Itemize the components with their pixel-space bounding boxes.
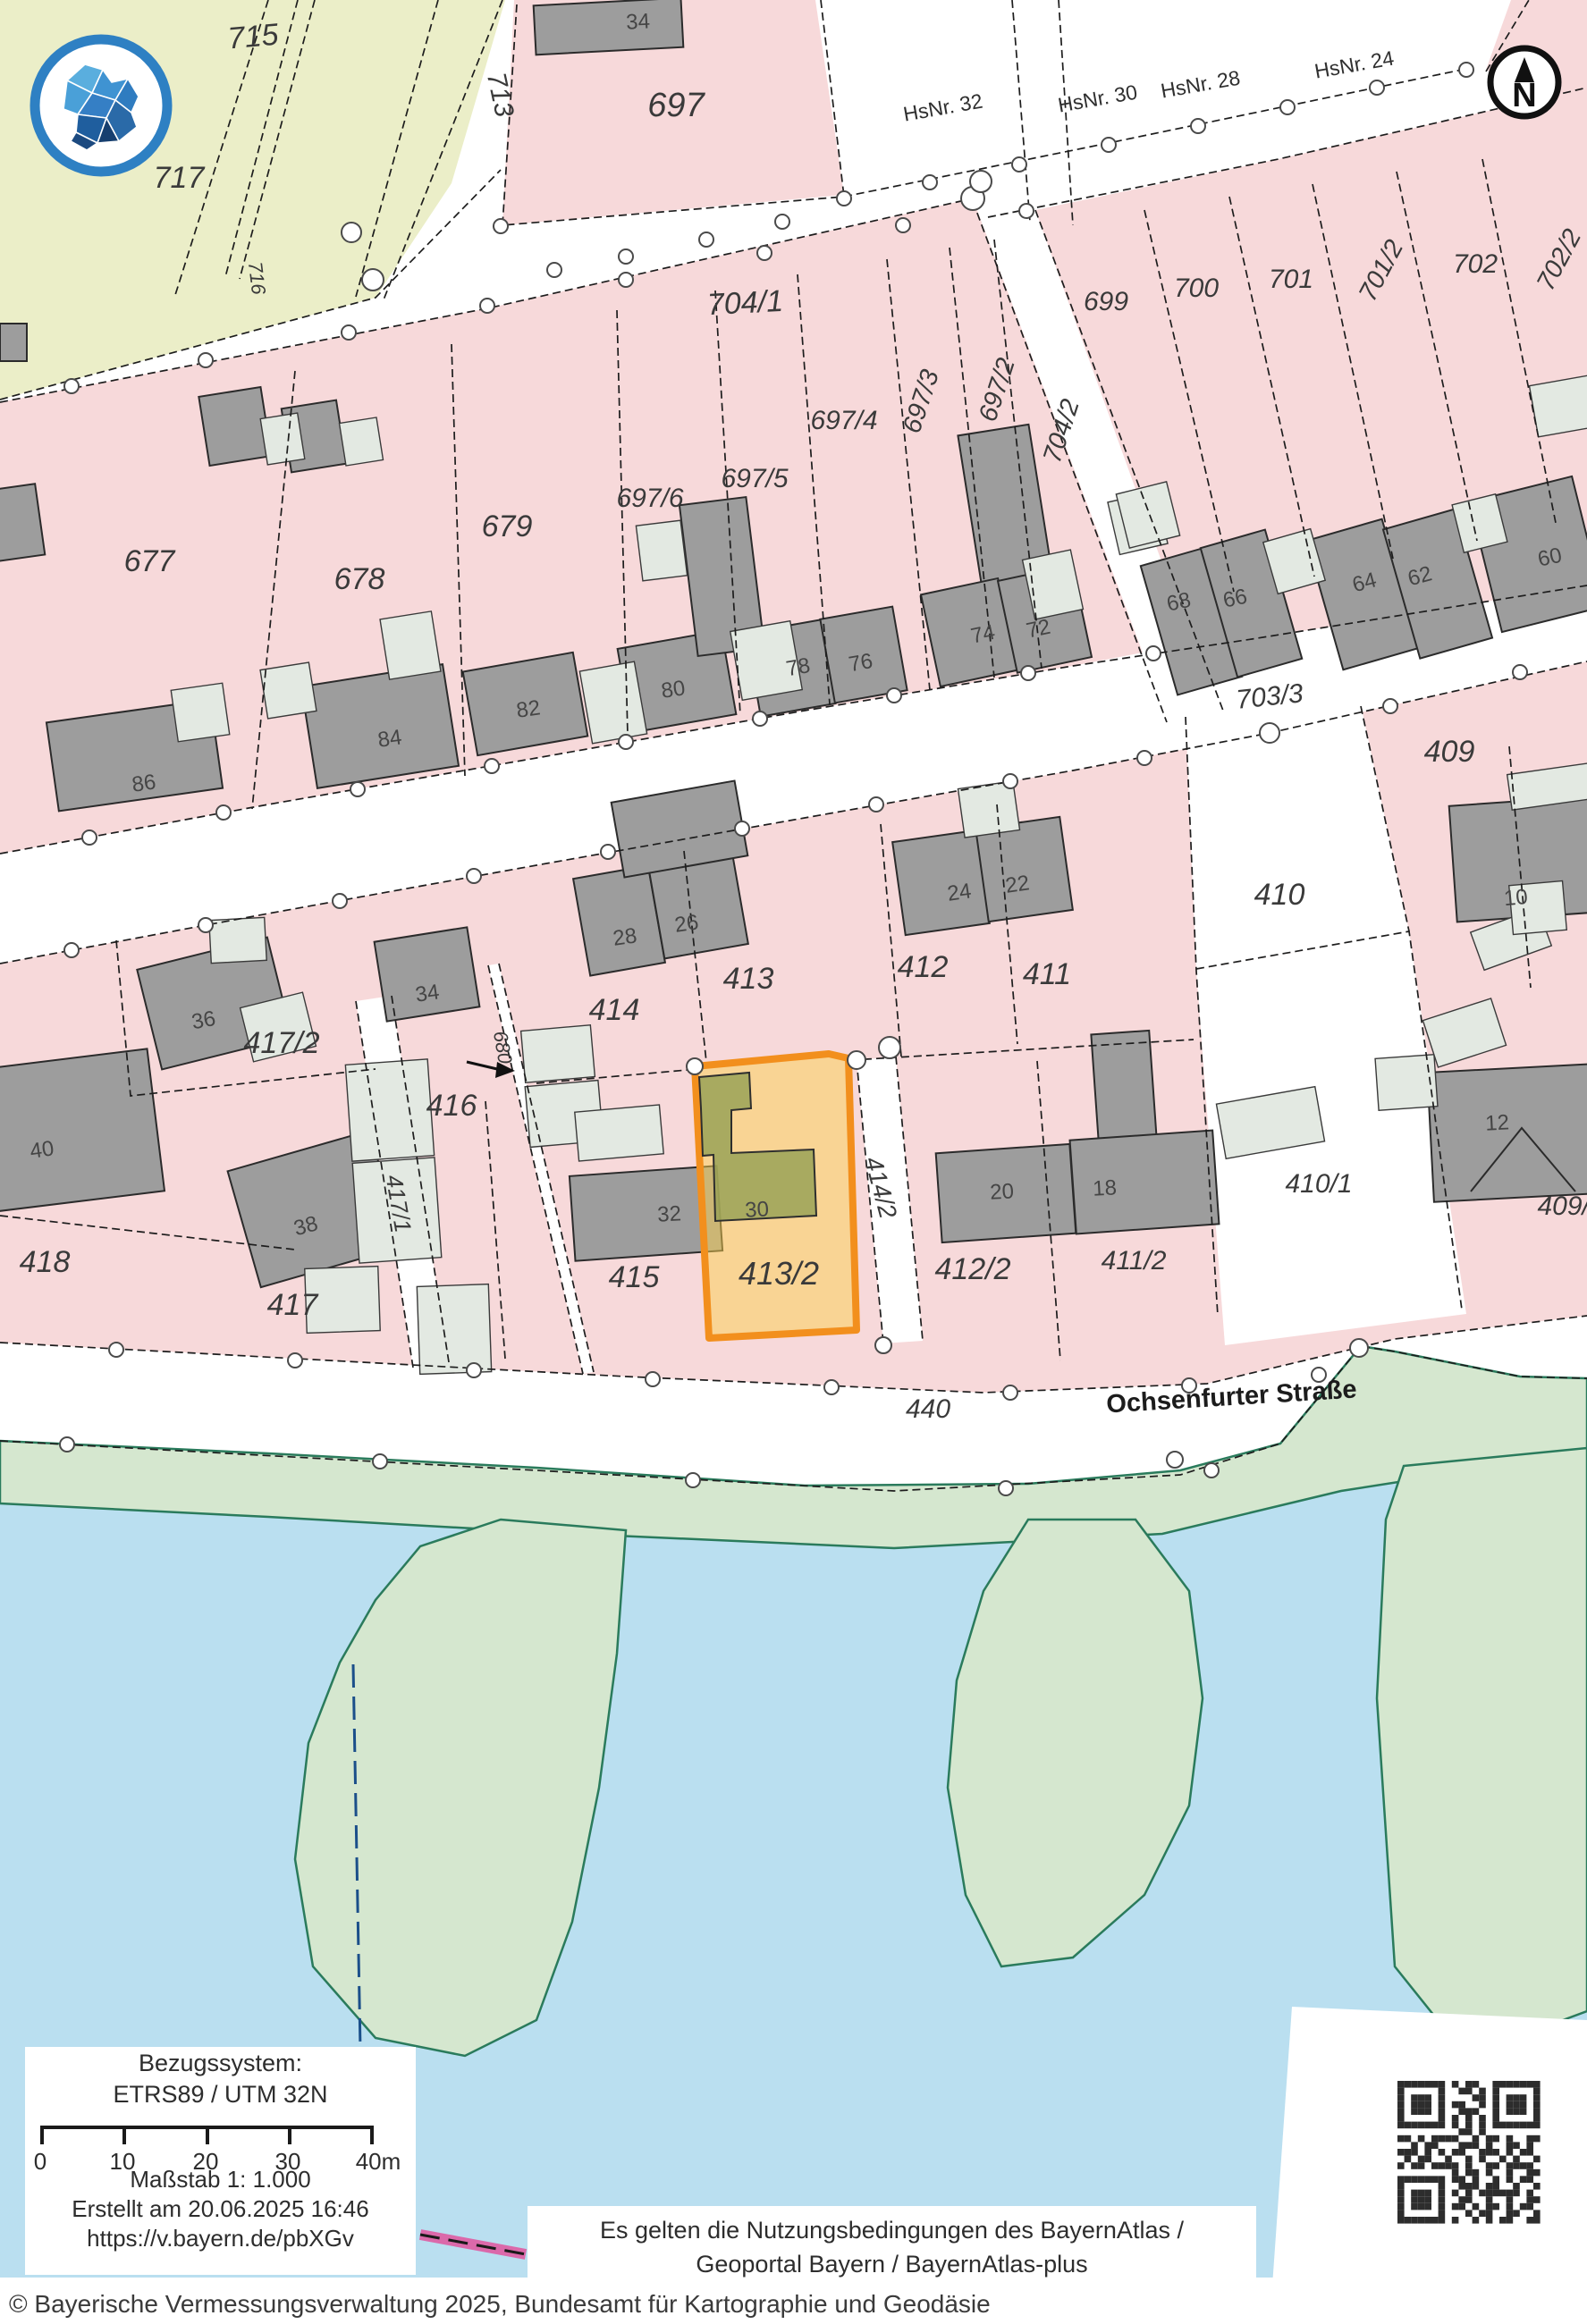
house-number-label: HsNr. 28 — [1159, 66, 1242, 103]
house-number-label: HsNr. 32 — [901, 89, 984, 126]
boundary-line — [1012, 0, 1030, 222]
survey-point — [848, 1051, 865, 1069]
survey-point — [342, 223, 361, 242]
building-number-label: 34 — [626, 9, 651, 34]
survey-point — [480, 299, 494, 313]
building-number-label: 26 — [673, 910, 700, 937]
building-number-label: 82 — [515, 695, 542, 722]
parcel-label: 702 — [1453, 249, 1498, 279]
terms-line-1: Es gelten die Nutzungsbedingungen des Ba… — [528, 2213, 1256, 2247]
north-arrow-icon: N — [1490, 48, 1558, 116]
survey-point — [1102, 138, 1116, 152]
parcel-label: 716 — [244, 260, 270, 296]
building-number-label: 68 — [1165, 588, 1194, 617]
survey-point — [485, 759, 499, 773]
survey-point — [1146, 646, 1161, 661]
highlight-parcel-413-2 — [695, 1054, 857, 1338]
survey-point — [1370, 80, 1384, 95]
scale-bar — [40, 2126, 374, 2147]
outbuilding — [575, 1105, 663, 1161]
reference-box: Bezugssystem: ETRS89 / UTM 32N 0 10 20 3… — [25, 2047, 416, 2275]
survey-point — [1012, 157, 1026, 172]
survey-point — [333, 894, 347, 908]
reference-system-value: ETRS89 / UTM 32N — [25, 2080, 416, 2109]
survey-point — [288, 1353, 302, 1368]
outbuilding — [521, 1025, 595, 1083]
building-number-label: 84 — [376, 725, 403, 752]
building-number-label: 30 — [745, 1197, 770, 1222]
survey-point — [837, 191, 851, 206]
parcel-label: 679 — [482, 509, 533, 543]
parcel-label: 414 — [589, 993, 640, 1027]
survey-point — [757, 246, 772, 260]
building — [198, 387, 271, 466]
building-number-label: 12 — [1485, 1110, 1510, 1135]
outbuilding — [260, 413, 305, 465]
building-number-label: 18 — [1093, 1175, 1118, 1200]
survey-point — [619, 273, 633, 287]
survey-point — [869, 797, 883, 812]
parcel-label: 697 — [647, 87, 705, 124]
survey-point — [1260, 723, 1279, 743]
house-number-label: HsNr. 30 — [1056, 80, 1139, 117]
survey-point — [699, 232, 713, 247]
parcel-label: 410 — [1254, 878, 1305, 912]
cadastral-map-canvas: N 715717716713697704/1699700701701/27027… — [0, 0, 1587, 2324]
short-url: https://v.bayern.de/pbXGv — [25, 2224, 416, 2253]
reference-system-label: Bezugssystem: — [25, 2049, 416, 2078]
survey-point — [350, 782, 365, 796]
survey-point — [1280, 100, 1295, 114]
parcel-label: 697/5 — [721, 464, 788, 493]
building-number-label: 74 — [969, 620, 998, 649]
terms-line-2: Geoportal Bayern / BayernAtlas-plus — [528, 2247, 1256, 2281]
building — [0, 1048, 165, 1212]
parcel-label: 411 — [1023, 957, 1071, 991]
survey-point — [1383, 699, 1397, 713]
building — [534, 0, 684, 55]
survey-point — [1019, 204, 1034, 218]
survey-point — [753, 712, 767, 726]
building-number-label: 32 — [657, 1201, 682, 1226]
survey-point — [735, 821, 749, 836]
parcel-label: 697/4 — [810, 406, 877, 435]
survey-point — [373, 1454, 387, 1469]
survey-point — [896, 218, 910, 232]
outbuilding — [579, 661, 646, 744]
survey-point — [999, 1481, 1013, 1495]
scale-tick-labels: 0 10 20 30 40m — [25, 2147, 416, 2174]
survey-point — [362, 269, 384, 290]
survey-point — [775, 215, 789, 229]
survey-point — [60, 1437, 74, 1452]
survey-point — [1191, 119, 1205, 133]
survey-point — [547, 263, 561, 277]
survey-point — [923, 175, 937, 189]
building-number-label: 76 — [847, 649, 874, 677]
outbuilding — [380, 611, 441, 679]
survey-point — [879, 1037, 900, 1058]
survey-point — [619, 249, 633, 264]
svg-text:N: N — [1512, 77, 1536, 114]
parcel-label: 413/2 — [739, 1255, 819, 1292]
survey-point — [687, 1058, 703, 1074]
parcel-label: 704/1 — [706, 284, 784, 322]
survey-point — [619, 735, 633, 749]
building-number-label: 34 — [414, 980, 441, 1006]
map-export-page: N 715717716713697704/1699700701701/27027… — [0, 0, 1587, 2324]
building-number-label: 24 — [946, 879, 973, 905]
parcel-label: 717 — [154, 161, 206, 195]
survey-point — [82, 830, 97, 845]
building-number-label: 28 — [612, 923, 638, 950]
building-number-label: 22 — [1004, 871, 1031, 897]
house-number-label: HsNr. 24 — [1313, 46, 1396, 83]
survey-point — [1204, 1463, 1219, 1478]
outbuilding — [1375, 1055, 1438, 1110]
survey-point — [601, 845, 615, 859]
survey-point — [1003, 1385, 1017, 1400]
building-number-label: 78 — [784, 653, 812, 681]
survey-point — [216, 805, 231, 820]
outbuilding — [1530, 375, 1587, 437]
outbuilding — [340, 417, 384, 466]
survey-point — [1003, 774, 1017, 788]
parcel-label: 677 — [124, 544, 176, 578]
survey-point — [64, 943, 79, 957]
parcel-label: 410/1 — [1285, 1169, 1352, 1199]
building-number-label: 80 — [660, 676, 687, 703]
parcel-label: 700 — [1174, 274, 1219, 303]
survey-point — [109, 1343, 123, 1357]
parcel-label: 715 — [226, 18, 280, 56]
survey-point — [875, 1337, 891, 1353]
parcel-label: 417/2 — [243, 1026, 319, 1060]
outbuilding — [345, 1059, 434, 1161]
outbuilding — [209, 917, 266, 963]
outbuilding — [417, 1284, 491, 1375]
building — [0, 324, 27, 361]
building-number-label: 60 — [1536, 543, 1565, 572]
created-timestamp: Erstellt am 20.06.2025 16:46 — [25, 2194, 416, 2224]
survey-point — [887, 688, 901, 703]
building-number-label: 72 — [1025, 615, 1053, 644]
building — [892, 830, 990, 935]
survey-point — [1021, 666, 1035, 680]
outbuilding — [636, 520, 687, 581]
outbuilding — [171, 683, 230, 742]
survey-point — [1167, 1452, 1183, 1468]
parcel-label: 409/1 — [1537, 1191, 1587, 1221]
parcel-label: 678 — [334, 562, 385, 596]
outbuilding — [260, 662, 317, 719]
building-number-label: 10 — [1503, 885, 1529, 911]
parcel-label: 416 — [426, 1089, 477, 1123]
parcel-label: 699 — [1084, 287, 1128, 316]
copyright-text: © Bayerische Vermessungsverwaltung 2025,… — [9, 2290, 991, 2319]
survey-point — [467, 869, 481, 883]
survey-point — [467, 1363, 481, 1377]
survey-point — [494, 219, 508, 233]
building-number-label: 20 — [990, 1179, 1015, 1204]
survey-point — [342, 325, 356, 340]
survey-point — [970, 171, 992, 192]
parcel-label: 417 — [267, 1288, 319, 1322]
building-number-label: 66 — [1221, 585, 1250, 613]
survey-point — [1513, 665, 1527, 679]
parcel-label: 440 — [906, 1394, 950, 1424]
survey-point — [1350, 1339, 1368, 1357]
map-margin — [1270, 2007, 1587, 2324]
parcel-label: 415 — [609, 1260, 660, 1294]
survey-point — [64, 379, 79, 393]
building-number-label: 86 — [131, 770, 157, 796]
parcel-label: 412/2 — [934, 1252, 1010, 1286]
parcel-label: 701 — [1269, 265, 1313, 294]
bayernatlas-logo-icon — [35, 39, 167, 172]
building — [375, 927, 480, 1021]
parcel-label: 418 — [20, 1245, 71, 1279]
building-number-label: 40 — [29, 1136, 55, 1163]
survey-point — [686, 1473, 700, 1487]
building — [301, 664, 459, 788]
parcel-label: 411/2 — [1102, 1246, 1167, 1276]
survey-point — [198, 918, 213, 932]
parcel-label: 697/6 — [616, 484, 683, 513]
survey-point — [1459, 63, 1473, 77]
parcel-label: 409 — [1424, 735, 1475, 769]
footer-band: © Bayerische Vermessungsverwaltung 2025,… — [0, 2278, 1587, 2324]
building-number-label: 36 — [190, 1006, 217, 1034]
survey-point — [646, 1372, 660, 1386]
survey-point — [1137, 751, 1152, 765]
parcel-label: 413 — [723, 962, 774, 996]
survey-point — [198, 353, 213, 367]
survey-point — [824, 1380, 839, 1394]
parcel-label: 412 — [898, 950, 949, 984]
